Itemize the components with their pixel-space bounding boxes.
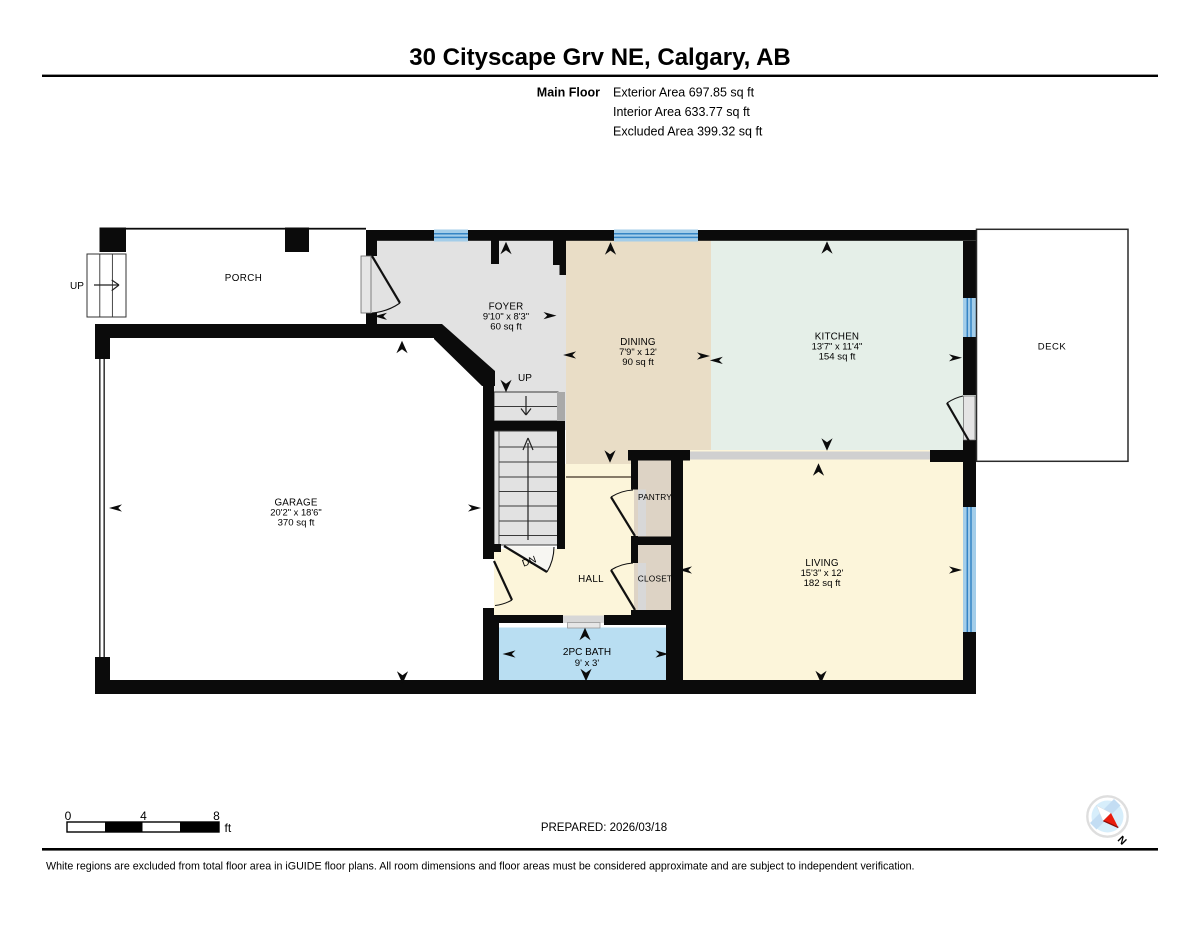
svg-text:2PC BATH: 2PC BATH — [563, 647, 611, 658]
svg-text:8: 8 — [213, 809, 220, 823]
svg-text:90 sq ft: 90 sq ft — [622, 357, 654, 368]
svg-text:13'7" x 11'4": 13'7" x 11'4" — [812, 341, 863, 352]
svg-text:182 sq ft: 182 sq ft — [804, 578, 841, 589]
svg-text:9'10" x 8'3": 9'10" x 8'3" — [483, 311, 529, 322]
svg-text:9' x 3': 9' x 3' — [575, 658, 600, 669]
svg-text:154 sq ft: 154 sq ft — [819, 352, 856, 363]
svg-text:7'9" x 12': 7'9" x 12' — [619, 346, 657, 357]
svg-text:30 Cityscape Grv NE, Calgary,: 30 Cityscape Grv NE, Calgary, AB — [409, 44, 791, 71]
svg-text:370 sq ft: 370 sq ft — [278, 518, 315, 529]
svg-text:UP: UP — [70, 281, 84, 292]
svg-text:4: 4 — [140, 809, 147, 823]
svg-text:Exterior Area 697.85 sq ft: Exterior Area 697.85 sq ft — [613, 86, 755, 100]
svg-text:CLOSET: CLOSET — [638, 574, 672, 584]
svg-text:White regions are excluded fro: White regions are excluded from total fl… — [46, 861, 915, 873]
svg-text:PREPARED: 2026/03/18: PREPARED: 2026/03/18 — [541, 822, 667, 834]
svg-text:HALL: HALL — [578, 574, 604, 585]
svg-text:Interior Area 633.77 sq ft: Interior Area 633.77 sq ft — [613, 105, 750, 119]
svg-text:PORCH: PORCH — [225, 273, 262, 284]
svg-text:20'2" x 18'6": 20'2" x 18'6" — [270, 507, 321, 518]
svg-text:15'3" x 12': 15'3" x 12' — [801, 567, 844, 578]
svg-text:Main Floor: Main Floor — [537, 86, 600, 100]
svg-text:UP: UP — [518, 373, 532, 384]
svg-text:0: 0 — [65, 809, 72, 823]
svg-text:60 sq ft: 60 sq ft — [490, 322, 522, 333]
svg-text:Excluded Area 399.32 sq ft: Excluded Area 399.32 sq ft — [613, 125, 763, 139]
svg-text:ft: ft — [225, 821, 232, 835]
svg-text:DECK: DECK — [1038, 342, 1067, 353]
svg-text:PANTRY: PANTRY — [638, 492, 672, 502]
